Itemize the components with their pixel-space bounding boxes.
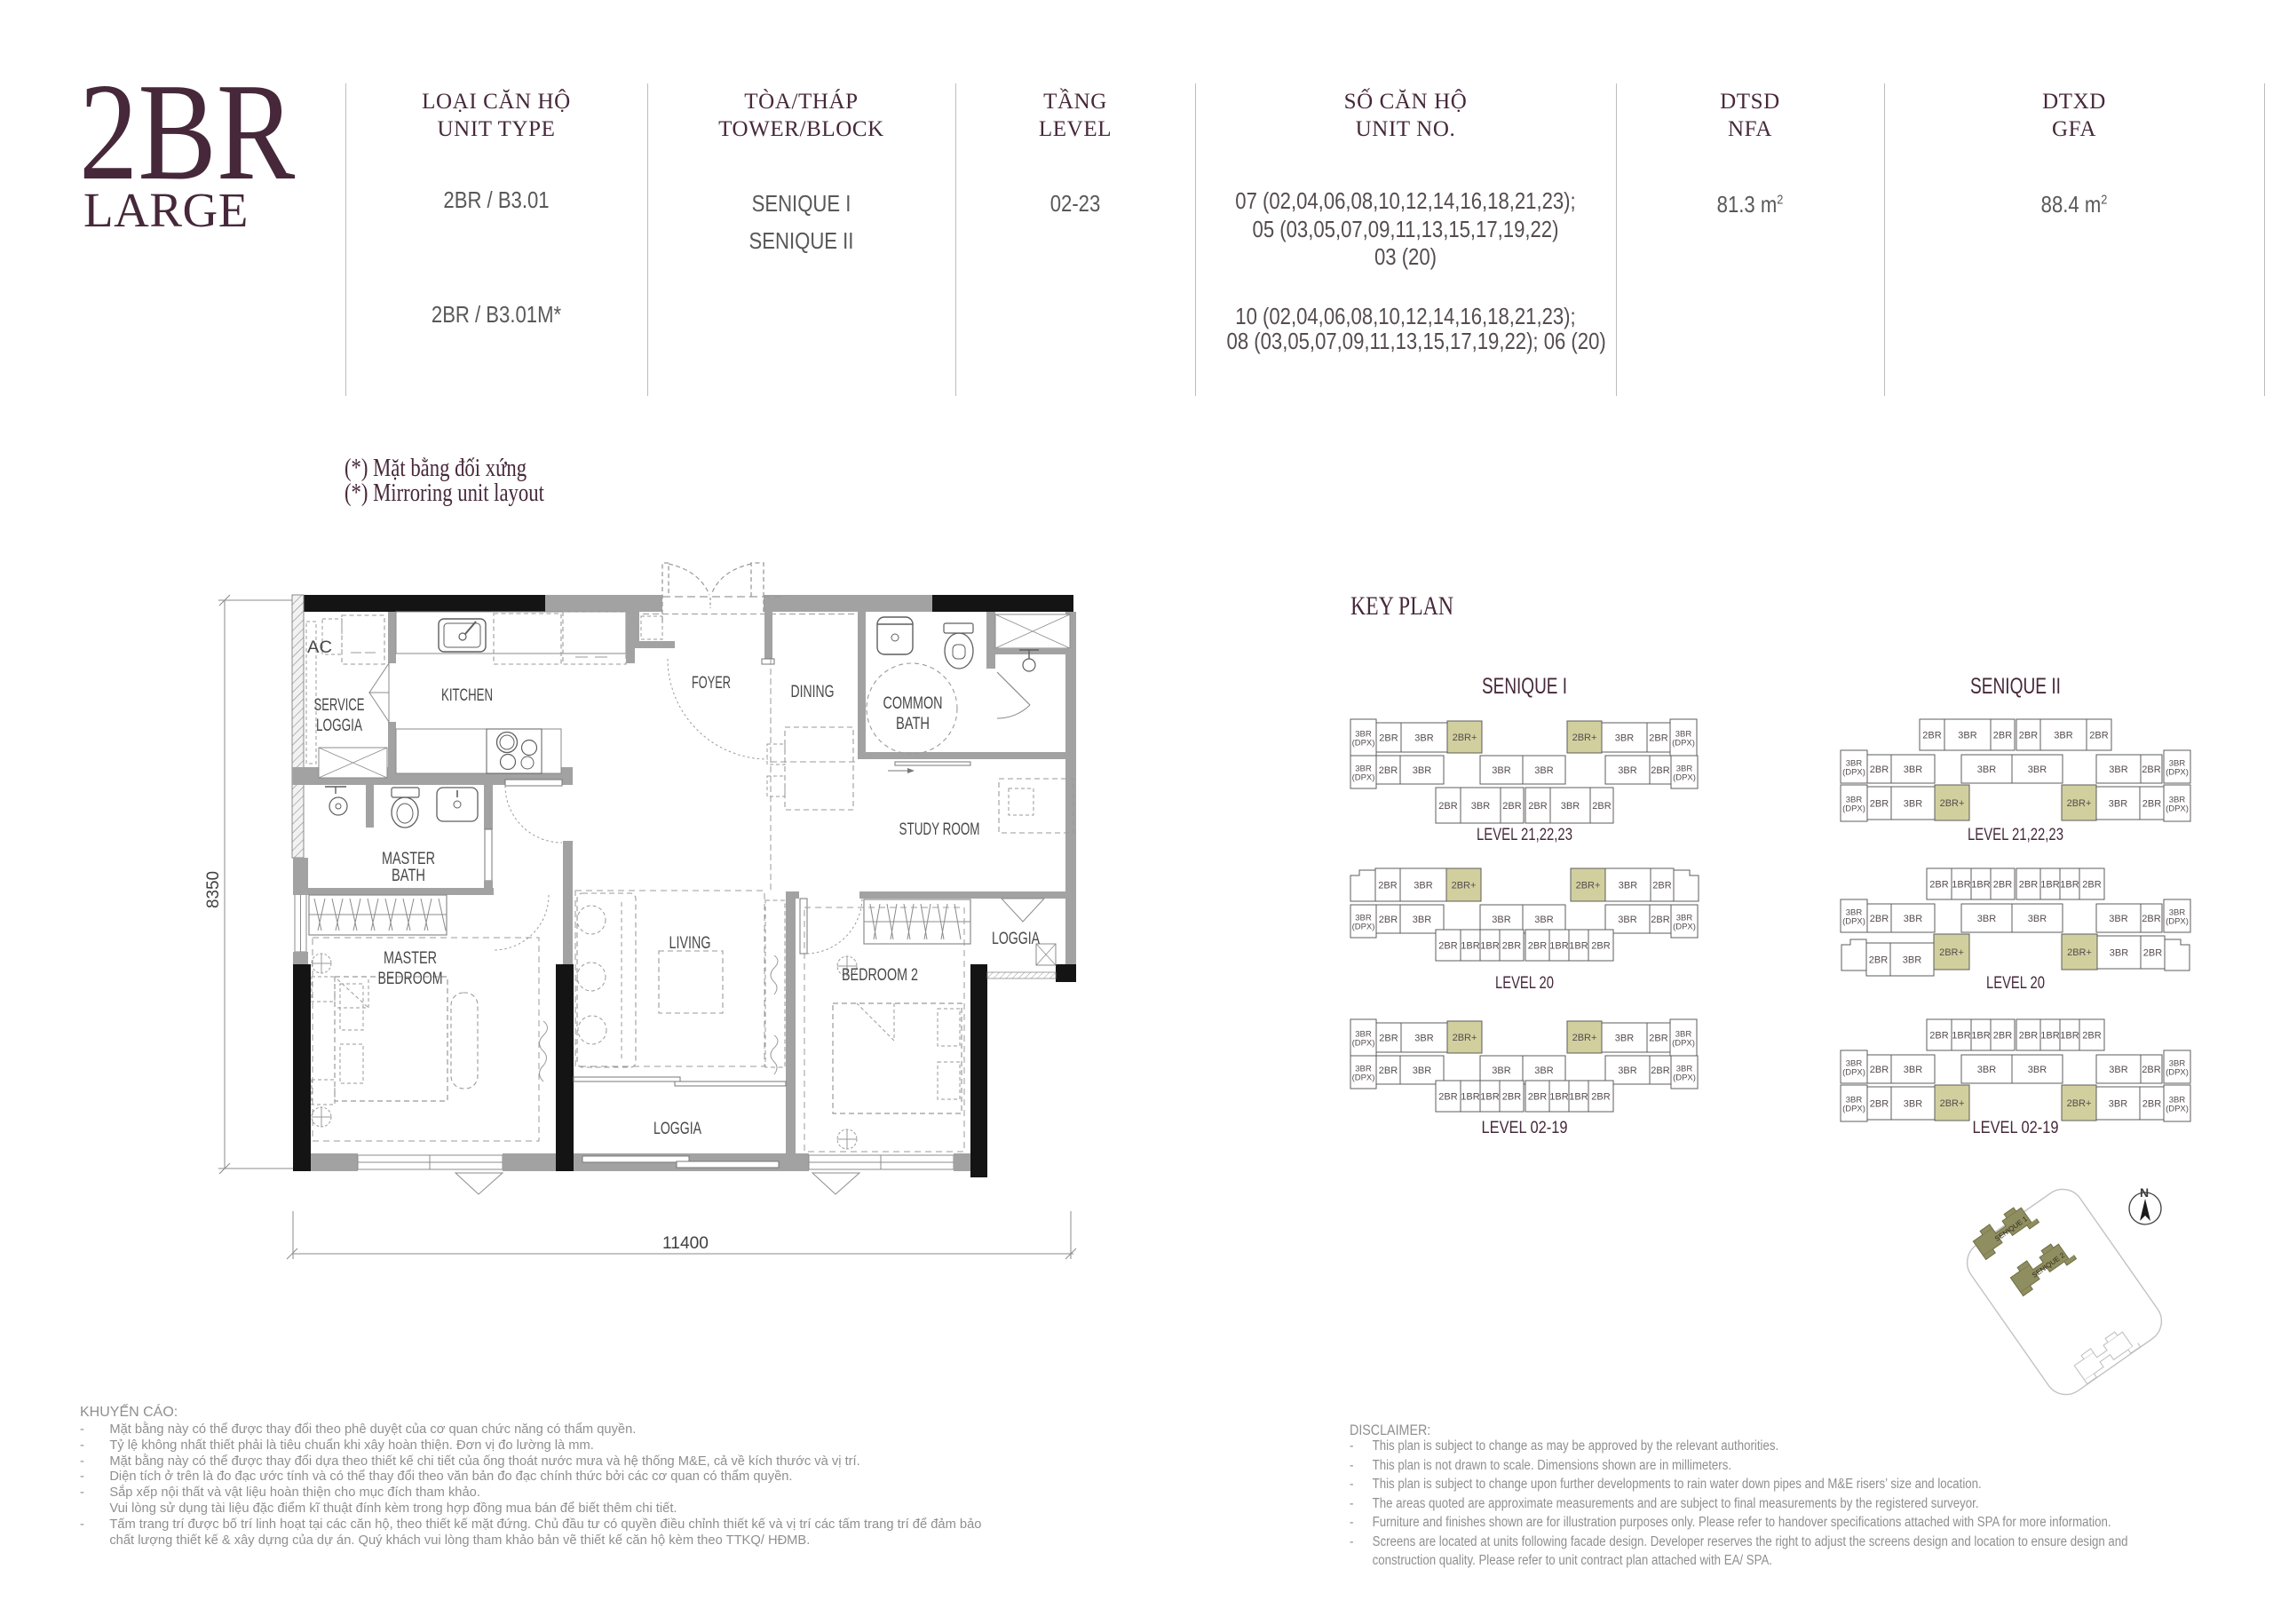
svg-text:1BR: 1BR [1971,880,1990,891]
svg-text:1BR: 1BR [1971,1031,1990,1042]
svg-text:LEVEL 20: LEVEL 20 [1495,974,1554,993]
svg-text:2BR: 2BR [1651,765,1669,776]
svg-text:(DPX): (DPX) [2166,768,2189,778]
svg-text:2BR: 2BR [1379,733,1398,744]
svg-text:1BR: 1BR [1569,941,1588,952]
svg-text:11400: 11400 [662,1234,709,1253]
svg-text:(DPX): (DPX) [2166,1068,2189,1078]
svg-text:2BR: 2BR [1651,1066,1669,1076]
svg-text:2BR: 2BR [1870,1065,1889,1075]
svg-text:2BR+: 2BR+ [1572,733,1597,743]
svg-text:2BR+: 2BR+ [1939,947,1964,958]
svg-text:2BR: 2BR [1869,955,1888,966]
svg-text:(DPX): (DPX) [2166,1105,2189,1114]
svg-text:(DPX): (DPX) [1352,923,1375,932]
svg-text:2BR: 2BR [1870,914,1889,924]
svg-text:2BR: 2BR [1379,765,1398,776]
svg-text:2BR: 2BR [1870,1099,1889,1110]
svg-text:2BR+: 2BR+ [1940,1098,1965,1109]
svg-text:2BR+: 2BR+ [1452,881,1477,891]
svg-text:3BR: 3BR [1414,1034,1433,1044]
svg-text:2BR: 2BR [1591,1092,1610,1103]
svg-text:(DPX): (DPX) [2166,917,2189,927]
svg-text:3BR: 3BR [2028,914,2047,924]
svg-text:3BR: 3BR [1561,801,1580,812]
svg-text:2BR: 2BR [1528,941,1547,952]
svg-text:N: N [2140,1185,2149,1200]
svg-text:2BR: 2BR [1438,1092,1457,1103]
svg-text:2BR: 2BR [1379,915,1398,925]
svg-text:LOGGIA: LOGGIA [653,1120,701,1138]
svg-text:2BR+: 2BR+ [2067,1098,2092,1109]
svg-text:(DPX): (DPX) [1673,773,1696,783]
svg-text:1BR: 1BR [1952,880,1970,891]
svg-text:2BR: 2BR [2142,1065,2160,1075]
svg-text:FOYER: FOYER [692,674,731,693]
svg-text:2BR: 2BR [1502,941,1521,952]
svg-text:2BR: 2BR [1993,1031,2012,1042]
svg-text:(DPX): (DPX) [1842,1105,1865,1114]
svg-text:1BR: 1BR [2060,880,2079,891]
svg-text:3BR: 3BR [1619,881,1637,891]
svg-text:LOGGIA: LOGGIA [316,717,362,735]
svg-text:BEDROOM 2: BEDROOM 2 [842,966,918,985]
svg-text:3BR: 3BR [2028,764,2047,775]
svg-text:(DPX): (DPX) [1672,739,1695,749]
svg-text:3BR: 3BR [1471,801,1490,812]
svg-text:3BR: 3BR [1618,1066,1636,1076]
svg-text:2BR: 2BR [2142,764,2160,775]
svg-text:2BR+: 2BR+ [1940,798,1965,809]
svg-text:1BR: 1BR [1569,1092,1588,1103]
svg-text:3BR: 3BR [1413,915,1431,925]
svg-text:LEVEL 02-19: LEVEL 02-19 [1973,1119,2059,1137]
svg-text:3BR: 3BR [2110,948,2128,959]
svg-text:2BR+: 2BR+ [1453,1033,1477,1043]
svg-text:2BR: 2BR [1651,915,1669,925]
svg-text:3BR: 3BR [1492,765,1510,776]
svg-text:AC: AC [307,638,332,657]
svg-text:3BR: 3BR [2109,799,2127,810]
svg-text:2BR: 2BR [2019,1031,2038,1042]
svg-text:2BR: 2BR [1528,1092,1547,1103]
svg-text:3BR: 3BR [1534,1066,1553,1076]
svg-text:3BR: 3BR [1414,881,1432,891]
svg-text:3BR: 3BR [1958,731,1976,741]
svg-text:3BR: 3BR [2054,731,2072,741]
svg-text:3BR: 3BR [1492,1066,1510,1076]
svg-text:2BR+: 2BR+ [2067,947,2092,958]
svg-text:BATH: BATH [896,715,930,733]
svg-text:3BR: 3BR [1904,764,1922,775]
svg-text:(DPX): (DPX) [1352,1073,1375,1083]
svg-text:2BR: 2BR [1993,731,2012,741]
svg-text:2BR: 2BR [1870,764,1889,775]
svg-text:3BR: 3BR [1977,1065,1996,1075]
svg-text:2BR+: 2BR+ [2067,798,2092,809]
svg-text:STUDY ROOM: STUDY ROOM [899,820,980,839]
svg-text:3BR: 3BR [1492,915,1510,925]
svg-text:(DPX): (DPX) [1842,768,1865,778]
svg-text:3BR: 3BR [1904,1099,1922,1110]
svg-text:1BR: 1BR [2040,1031,2059,1042]
svg-text:(DPX): (DPX) [1352,739,1375,749]
svg-text:3BR: 3BR [2109,914,2127,924]
svg-text:COMMON: COMMON [883,694,943,713]
svg-text:1BR: 1BR [1549,941,1568,952]
svg-text:1BR: 1BR [1549,1092,1568,1103]
svg-text:2BR+: 2BR+ [1576,881,1601,891]
svg-text:3BR: 3BR [1903,955,1921,966]
svg-text:SERVICE: SERVICE [314,696,365,715]
svg-text:3BR: 3BR [1904,914,1922,924]
svg-text:3BR: 3BR [1414,733,1433,744]
svg-text:3BR: 3BR [2109,1099,2127,1110]
svg-text:(DPX): (DPX) [1352,773,1375,783]
svg-text:LIVING: LIVING [669,934,711,953]
svg-text:2BR: 2BR [1438,941,1457,952]
svg-text:3BR: 3BR [1615,1034,1634,1044]
svg-text:(DPX): (DPX) [1842,804,1865,814]
svg-text:1BR: 1BR [1461,941,1479,952]
svg-text:2BR: 2BR [2142,799,2161,810]
svg-text:MASTER: MASTER [384,949,437,968]
svg-text:2BR: 2BR [1379,1066,1398,1076]
svg-text:3BR: 3BR [2028,1065,2047,1075]
svg-text:LOGGIA: LOGGIA [992,930,1040,948]
svg-text:(DPX): (DPX) [1672,1039,1695,1049]
svg-text:1BR: 1BR [1480,941,1499,952]
svg-text:2BR: 2BR [1649,733,1667,744]
svg-text:2BR: 2BR [2142,1099,2161,1110]
svg-text:KEY PLAN: KEY PLAN [1350,591,1453,621]
svg-text:1BR: 1BR [1461,1092,1479,1103]
svg-text:2BR: 2BR [1922,731,1941,741]
svg-text:BATH: BATH [392,867,425,885]
svg-text:(DPX): (DPX) [1842,1068,1865,1078]
svg-text:SENIQUE I: SENIQUE I [1482,674,1567,699]
svg-text:2BR: 2BR [1652,881,1671,891]
svg-text:3BR: 3BR [1413,765,1431,776]
svg-text:2BR+: 2BR+ [1572,1033,1597,1043]
svg-text:2BR: 2BR [1592,801,1611,812]
svg-text:2BR: 2BR [2142,914,2160,924]
svg-text:3BR: 3BR [1977,914,1996,924]
svg-text:2BR: 2BR [1870,799,1889,810]
svg-text:2BR: 2BR [2019,880,2038,891]
svg-text:2BR+: 2BR+ [1453,733,1477,743]
svg-text:(DPX): (DPX) [1673,1073,1696,1083]
svg-text:2BR: 2BR [1502,801,1521,812]
svg-text:3BR: 3BR [1534,915,1553,925]
svg-text:1BR: 1BR [2060,1031,2079,1042]
svg-text:2BR: 2BR [2082,1031,2101,1042]
svg-text:2BR: 2BR [1438,801,1457,812]
svg-text:LEVEL 21,22,23: LEVEL 21,22,23 [1477,826,1572,844]
svg-text:(DPX): (DPX) [1673,923,1696,932]
svg-text:MASTER: MASTER [382,850,435,868]
svg-text:3BR: 3BR [1534,765,1553,776]
svg-text:LEVEL 20: LEVEL 20 [1986,974,2045,993]
svg-text:2BR: 2BR [1993,880,2012,891]
svg-text:LEVEL 02-19: LEVEL 02-19 [1482,1119,1568,1137]
svg-text:3BR: 3BR [1618,765,1636,776]
svg-text:1BR: 1BR [1952,1031,1970,1042]
svg-text:(DPX): (DPX) [1352,1039,1375,1049]
svg-text:2BR: 2BR [2143,948,2162,959]
svg-text:2BR: 2BR [2019,731,2038,741]
svg-text:3BR: 3BR [1615,733,1634,744]
svg-text:2BR: 2BR [1649,1034,1667,1044]
svg-text:KITCHEN: KITCHEN [441,686,493,705]
svg-text:DINING: DINING [791,683,835,701]
svg-text:(DPX): (DPX) [1842,917,1865,927]
svg-text:2BR: 2BR [1591,941,1610,952]
svg-text:2BR: 2BR [1929,880,1948,891]
svg-text:2BR: 2BR [2089,731,2108,741]
svg-text:2BR: 2BR [1379,1034,1398,1044]
svg-text:1BR: 1BR [1480,1092,1499,1103]
svg-text:BEDROOM: BEDROOM [378,970,443,988]
svg-text:8350: 8350 [204,871,223,908]
svg-text:2BR: 2BR [1929,1031,1948,1042]
svg-text:LEVEL 21,22,23: LEVEL 21,22,23 [1968,826,2063,844]
svg-text:3BR: 3BR [1904,1065,1922,1075]
svg-text:(DPX): (DPX) [2166,804,2189,814]
svg-text:3BR: 3BR [1413,1066,1431,1076]
svg-text:2BR: 2BR [1378,881,1397,891]
svg-text:2BR: 2BR [1502,1092,1521,1103]
svg-text:1BR: 1BR [2040,880,2059,891]
svg-text:3BR: 3BR [1904,799,1922,810]
svg-text:3BR: 3BR [1977,764,1996,775]
svg-text:3BR: 3BR [1618,915,1636,925]
svg-text:3BR: 3BR [2109,764,2127,775]
svg-text:2BR: 2BR [1528,801,1547,812]
svg-text:3BR: 3BR [2109,1065,2127,1075]
svg-text:2BR: 2BR [2082,880,2101,891]
svg-text:SENIQUE II: SENIQUE II [1970,674,2061,699]
